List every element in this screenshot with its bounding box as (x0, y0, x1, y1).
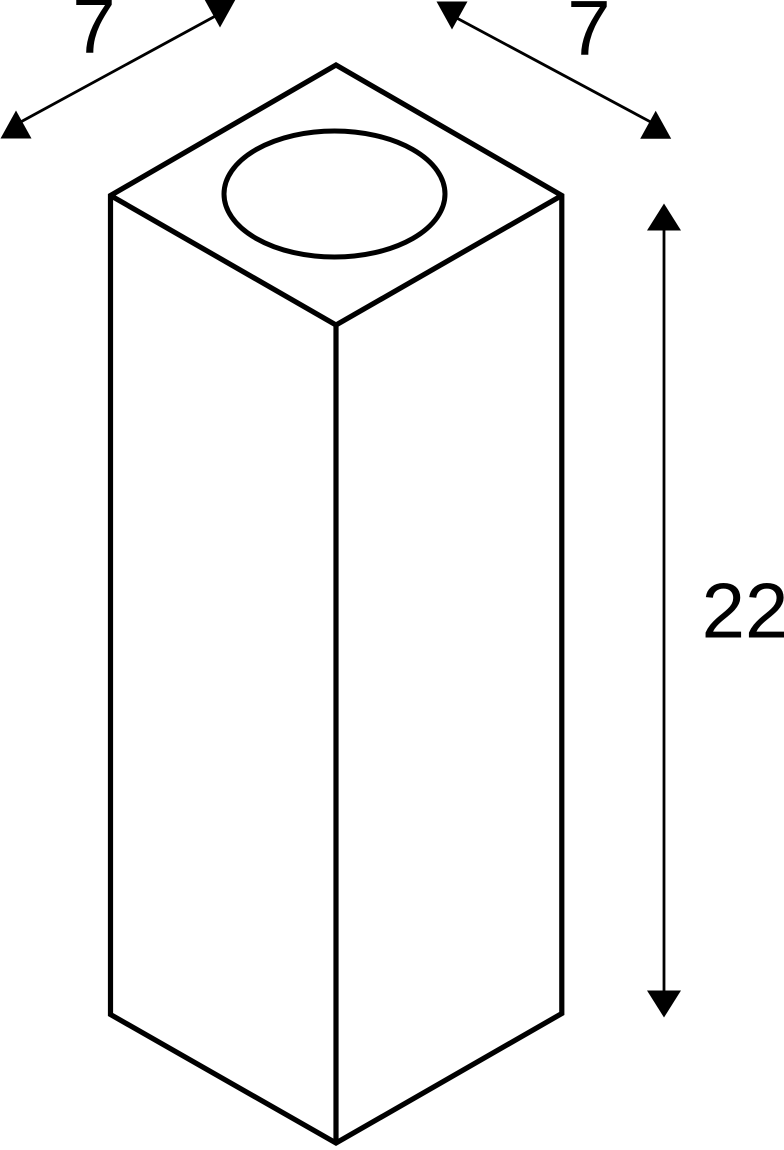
svg-text:7: 7 (72, 0, 115, 70)
svg-text:22: 22 (702, 567, 784, 655)
svg-text:7: 7 (567, 0, 610, 72)
